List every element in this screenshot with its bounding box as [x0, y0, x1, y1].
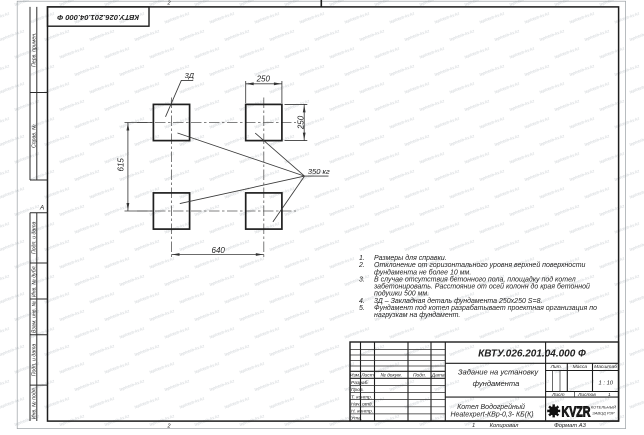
svg-text:Изм.: Изм.	[350, 373, 360, 379]
svg-text:Heatexpert-КВр-0,3- КБ(К): Heatexpert-КВр-0,3- КБ(К)	[450, 412, 533, 419]
svg-text:1: 1	[472, 423, 475, 429]
svg-text:Масштаб: Масштаб	[594, 364, 617, 370]
svg-text:А: А	[39, 205, 44, 212]
svg-text:КВТУ.026.201.04.000 Ф: КВТУ.026.201.04.000 Ф	[478, 349, 586, 360]
svg-text:5.: 5.	[359, 305, 365, 312]
svg-text:350 кг: 350 кг	[308, 167, 330, 176]
svg-text:2: 2	[166, 1, 170, 7]
svg-text:Фундамент под котел разрабатыв: Фундамент под котел разрабатывает проект…	[374, 304, 597, 312]
svg-text:Справ. №: Справ. №	[32, 124, 38, 148]
svg-text:№ докум.: № докум.	[380, 373, 402, 379]
svg-text:фундамента: фундамента	[473, 379, 520, 388]
svg-text:подушки 500 мм.: подушки 500 мм.	[374, 290, 429, 298]
svg-text:Т. контр.: Т. контр.	[351, 394, 372, 400]
svg-text:Разраб.: Разраб.	[351, 380, 369, 386]
svg-text:Котел Водогрейный: Котел Водогрейный	[457, 403, 525, 411]
svg-text:Формат А3: Формат А3	[554, 423, 586, 429]
svg-text:250: 250	[296, 115, 305, 130]
svg-text:3Д: 3Д	[185, 71, 195, 80]
svg-text:нагрузкам на фундамент.: нагрузкам на фундамент.	[374, 311, 460, 319]
svg-text:1 : 10: 1 : 10	[599, 380, 614, 386]
svg-text:ЗАВОД РЗР: ЗАВОД РЗР	[592, 411, 615, 416]
svg-text:Перв. примен.: Перв. примен.	[32, 32, 38, 66]
svg-text:Лист: Лист	[360, 373, 374, 379]
svg-text:Взам. инв. №: Взам. инв. №	[32, 300, 38, 332]
svg-text:Пров.: Пров.	[351, 387, 364, 393]
svg-text:Подп.: Подп.	[413, 373, 426, 379]
svg-text:Дата: Дата	[431, 373, 445, 379]
svg-text:Масса: Масса	[573, 364, 588, 370]
svg-text:В случае отсутствия бетонного: В случае отсутствия бетонного пола, площ…	[374, 275, 576, 283]
svg-text:2.: 2.	[358, 262, 365, 269]
svg-text:KVZR: KVZR	[562, 403, 591, 420]
svg-text:Размеры для справки.: Размеры для справки.	[374, 254, 447, 262]
svg-text:250: 250	[256, 74, 271, 83]
svg-text:1: 1	[608, 392, 611, 398]
svg-text:2: 2	[166, 424, 170, 430]
svg-text:КОТЕЛЬНЫЙ: КОТЕЛЬНЫЙ	[591, 405, 616, 410]
svg-text:Подп. и дата: Подп. и дата	[32, 221, 38, 254]
svg-text:3Д – Закладная деталь фундамен: 3Д – Закладная деталь фундамента 250х250…	[374, 297, 542, 305]
svg-text:Инв. № дубл.: Инв. № дубл.	[32, 265, 38, 297]
svg-text:фундамента не более 10 мм.: фундамента не более 10 мм.	[374, 268, 471, 276]
svg-text:4.: 4.	[359, 298, 365, 305]
svg-text:Подп. и дата: Подп. и дата	[32, 344, 38, 377]
svg-text:Н. контр.: Н. контр.	[351, 409, 373, 415]
svg-text:Лист: Лист	[551, 392, 565, 398]
svg-text:615: 615	[116, 158, 125, 172]
svg-text:Инв. № подл.: Инв. № подл.	[32, 387, 38, 419]
svg-text:Утв.: Утв.	[351, 416, 362, 422]
svg-text:Копировал: Копировал	[490, 423, 520, 429]
svg-text:Нач. отд.: Нач. отд.	[351, 402, 373, 408]
svg-text:Листов: Листов	[577, 392, 596, 398]
svg-text:забетонировать. Расстояние от: забетонировать. Расстояние от осей колон…	[373, 283, 590, 291]
svg-text:3.: 3.	[359, 276, 365, 283]
svg-text:640: 640	[212, 246, 226, 255]
svg-text:Отклонение от горизонтального: Отклонение от горизонтального уровня вер…	[374, 261, 586, 269]
svg-text:1.: 1.	[359, 255, 365, 262]
svg-text:Лит.: Лит.	[550, 364, 562, 370]
svg-text:КВТУ.026.201.04.000 Ф: КВТУ.026.201.04.000 Ф	[57, 13, 139, 22]
svg-text:Задание на установку: Задание на установку	[458, 368, 540, 377]
